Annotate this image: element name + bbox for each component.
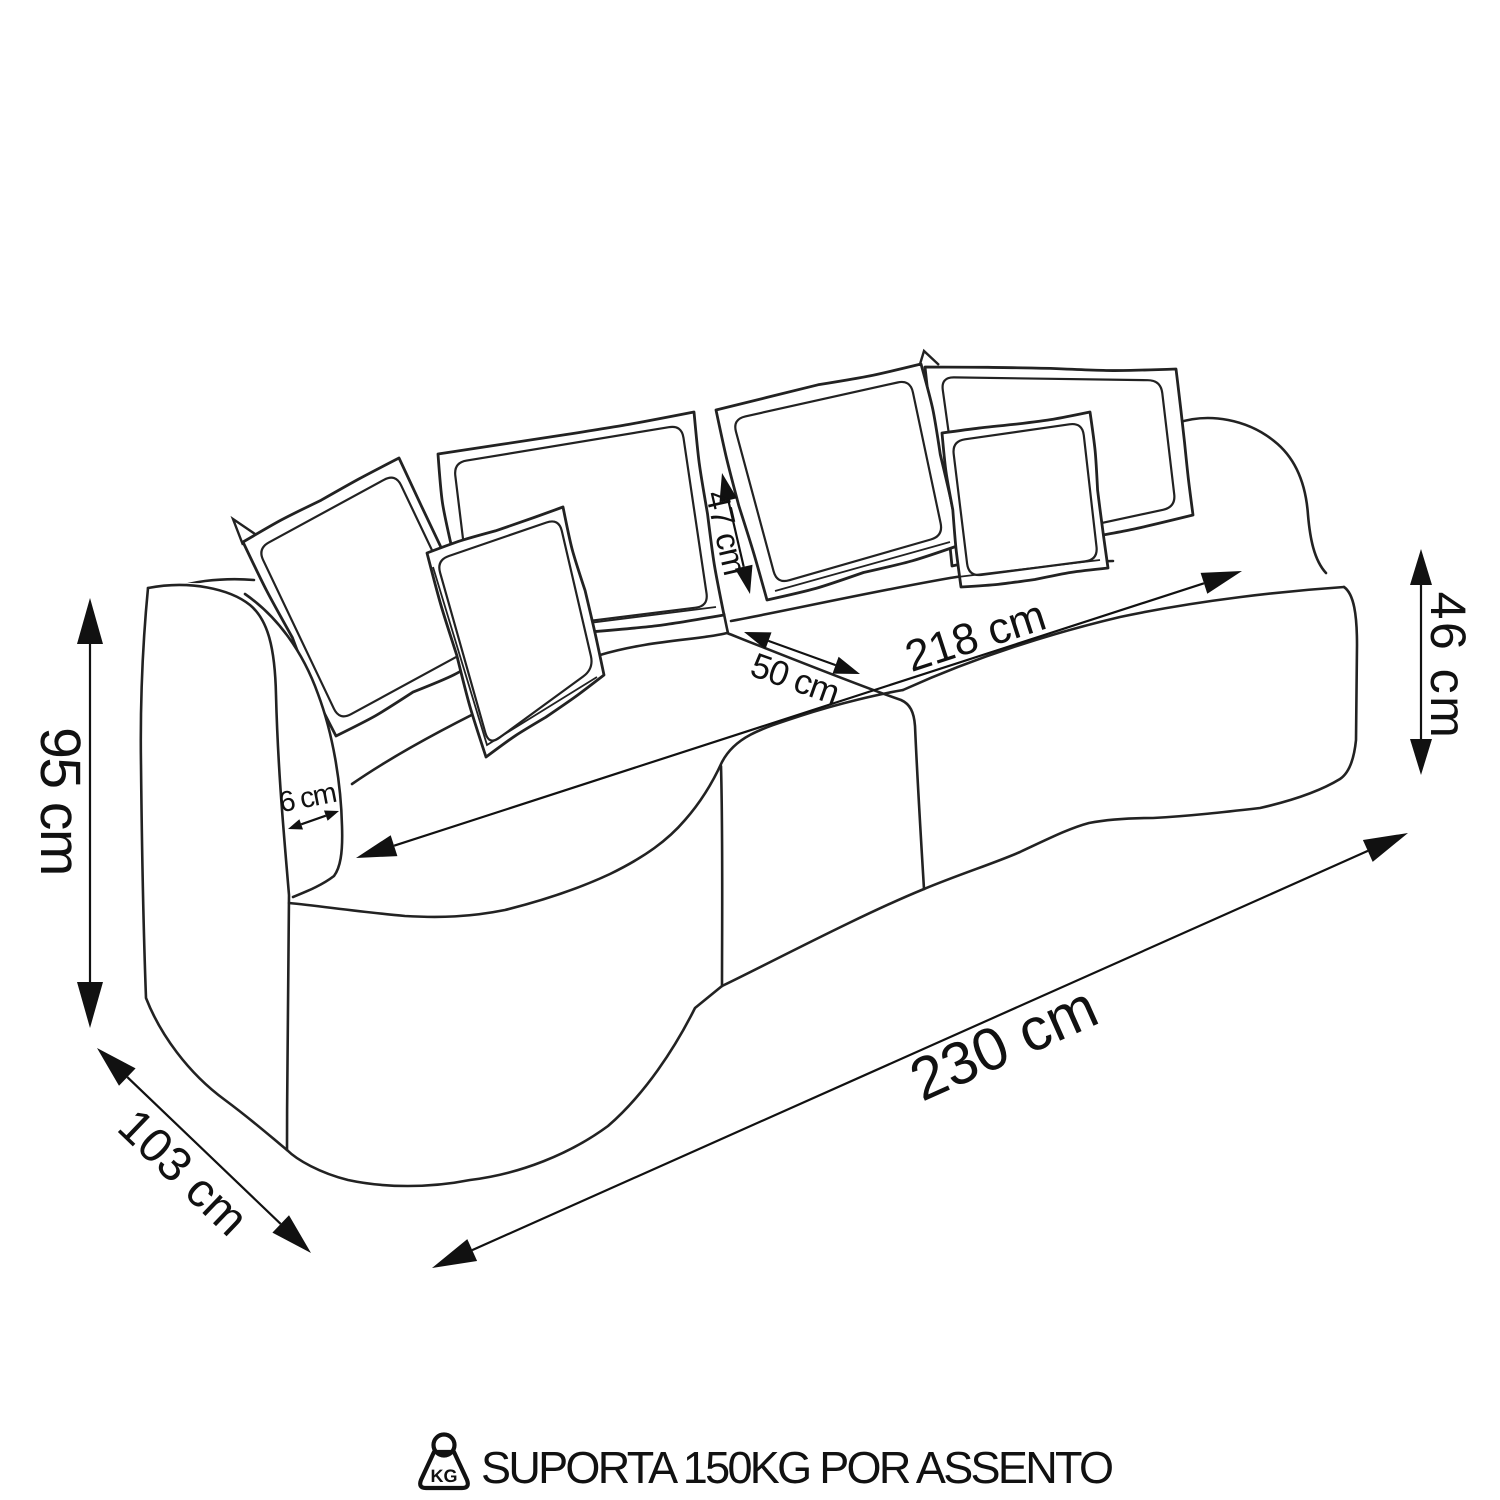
- svg-text:95 cm: 95 cm: [28, 727, 92, 875]
- svg-text:46 cm: 46 cm: [1420, 592, 1476, 741]
- svg-text:SUPORTA 150KG POR ASSENTO: SUPORTA 150KG POR ASSENTO: [481, 1442, 1112, 1493]
- svg-text:KG: KG: [431, 1466, 458, 1486]
